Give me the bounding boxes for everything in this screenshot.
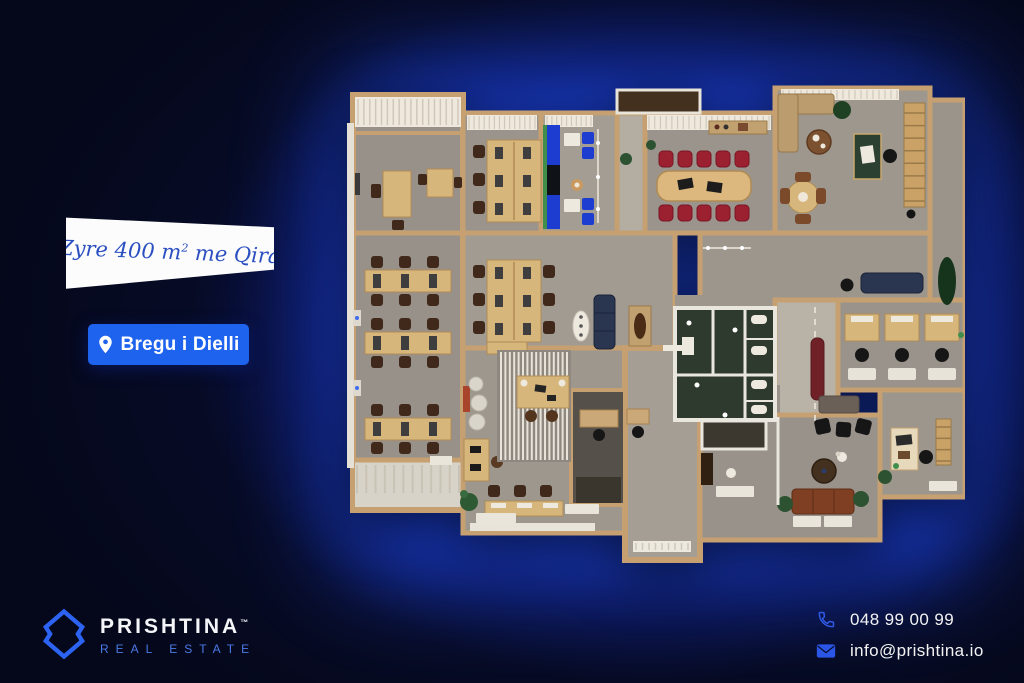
conference-chair	[735, 151, 749, 167]
cafe-chair	[582, 147, 594, 159]
plant	[853, 491, 869, 507]
office-chair	[895, 348, 909, 362]
chair	[399, 356, 411, 368]
conference-chair	[697, 205, 711, 221]
light-dot	[740, 246, 744, 250]
conference-chair	[735, 205, 749, 221]
chair	[795, 172, 811, 182]
chair	[473, 293, 485, 306]
chair	[371, 256, 383, 268]
lamp	[634, 313, 646, 339]
chair	[399, 404, 411, 416]
desk	[427, 169, 453, 197]
chair	[427, 318, 439, 330]
chair	[399, 318, 411, 330]
sill	[470, 523, 595, 531]
monitor	[401, 422, 409, 436]
contact-block: 048 99 00 99 info@prishtina.io	[816, 610, 984, 661]
offer-title: Zyre 400 m2 me Qira	[59, 236, 281, 268]
cafe-chair	[582, 213, 594, 225]
plant	[460, 490, 468, 498]
phone-row[interactable]: 048 99 00 99	[816, 610, 984, 630]
desk	[464, 439, 489, 481]
left-balcony-floor	[355, 462, 461, 507]
chair	[392, 220, 404, 230]
chair	[371, 356, 383, 368]
awning	[355, 97, 461, 127]
bin	[907, 210, 916, 219]
toilet	[751, 346, 767, 355]
decor	[579, 333, 583, 337]
toilet	[751, 315, 767, 324]
desk	[627, 409, 649, 424]
monitor	[543, 503, 558, 508]
envelope-icon	[816, 643, 836, 659]
window-dot	[355, 386, 359, 390]
door-gap	[663, 345, 689, 351]
monitor	[523, 323, 531, 335]
plant-small	[893, 463, 899, 469]
floor-mat	[888, 368, 916, 380]
pouf	[469, 414, 485, 430]
brand-name: PRISHTINA™	[100, 612, 256, 638]
sink	[723, 413, 728, 418]
window-dot	[958, 332, 964, 338]
coffee-table	[807, 130, 831, 154]
chair	[540, 485, 552, 497]
floor-mat	[824, 516, 852, 527]
light-dot	[706, 246, 710, 250]
diamond-logo-icon	[38, 606, 90, 662]
chair	[427, 442, 439, 454]
monitor	[495, 175, 503, 187]
monitor	[523, 267, 531, 279]
monitor	[495, 295, 503, 307]
light-dot	[596, 175, 600, 179]
utility-room	[702, 421, 766, 449]
outer-wall-west	[347, 123, 354, 468]
chair	[473, 201, 485, 214]
chair	[399, 294, 411, 306]
chair	[371, 184, 381, 198]
cabinet	[701, 453, 713, 485]
sink	[687, 321, 692, 326]
conference-table	[657, 171, 751, 201]
chair	[399, 256, 411, 268]
toilet	[751, 405, 767, 414]
decor	[836, 452, 841, 457]
monitor	[931, 316, 953, 322]
table-pad	[706, 181, 722, 193]
monitor	[523, 203, 531, 215]
decor	[579, 315, 583, 319]
pouf	[469, 377, 483, 391]
counter-item	[715, 125, 720, 130]
office-chair	[593, 429, 605, 441]
runner-rug	[811, 338, 824, 400]
chair	[427, 404, 439, 416]
chair	[816, 188, 826, 204]
sink	[733, 328, 738, 333]
papers	[860, 145, 875, 164]
cafe-chair	[582, 132, 594, 144]
chair	[795, 214, 811, 224]
awning	[467, 115, 537, 130]
conference-chair	[716, 151, 730, 167]
trademark-mark: ™	[240, 618, 248, 627]
chair	[780, 188, 790, 204]
cafe-chair	[582, 198, 594, 210]
monitor	[429, 274, 437, 288]
brand-block: PRISHTINA™ REAL ESTATE	[38, 606, 256, 662]
accent-wall	[463, 386, 470, 412]
monitor	[373, 274, 381, 288]
bookshelf	[904, 103, 925, 207]
stool-top	[575, 183, 580, 188]
floor-mat	[928, 368, 956, 380]
window-dot	[355, 316, 359, 320]
monitor	[517, 503, 532, 508]
desk-item	[898, 451, 910, 459]
monitor	[429, 422, 437, 436]
kitchen-counter	[547, 165, 560, 195]
chair	[427, 356, 439, 368]
conference-chair	[716, 205, 730, 221]
entry-hall	[617, 113, 645, 233]
decor	[821, 144, 826, 149]
lamp	[559, 380, 566, 387]
sofa-brown	[792, 489, 854, 514]
location-pin-icon	[98, 335, 113, 354]
pouf	[471, 395, 487, 411]
office-chair	[883, 149, 897, 163]
monitor	[470, 446, 481, 453]
plant	[878, 470, 892, 484]
office-chair	[632, 426, 644, 438]
office-chair	[935, 348, 949, 362]
chair	[543, 293, 555, 306]
decor	[822, 469, 827, 474]
conference-chair	[678, 151, 692, 167]
floor-mat	[929, 481, 957, 491]
chair	[473, 145, 485, 158]
conference-chair	[697, 151, 711, 167]
wardrobe	[936, 419, 951, 465]
monitor	[495, 203, 503, 215]
floor-mat	[793, 516, 821, 527]
floor-mat	[716, 486, 754, 497]
floor-mat	[430, 456, 452, 465]
location-label: Bregu i Dielli	[121, 334, 240, 356]
floor-mat	[565, 504, 599, 514]
monitor	[401, 274, 409, 288]
sofa-navy	[861, 273, 923, 293]
laptop	[547, 395, 556, 401]
decor	[798, 192, 808, 202]
monitor	[495, 147, 503, 159]
plant	[833, 101, 851, 119]
monitor	[851, 316, 873, 322]
conference-chair	[659, 151, 673, 167]
monitor	[523, 147, 531, 159]
desk	[383, 171, 411, 217]
brand-tagline: REAL ESTATE	[100, 642, 256, 656]
plant-tall	[938, 257, 956, 305]
counter-item	[724, 125, 729, 130]
kitchen-trim	[543, 125, 547, 229]
monitor	[470, 464, 481, 471]
floor-mat	[476, 513, 516, 523]
monitor	[891, 316, 913, 322]
chair	[543, 265, 555, 278]
chair	[473, 265, 485, 278]
terrace	[617, 90, 700, 113]
conference-chair	[678, 205, 692, 221]
chair	[488, 485, 500, 497]
chair	[454, 177, 462, 188]
location-button[interactable]: Bregu i Dielli	[88, 324, 249, 365]
sofa-navy	[594, 295, 615, 349]
email-address: info@prishtina.io	[850, 641, 984, 661]
loveseat	[819, 396, 859, 413]
toilet	[751, 380, 767, 389]
chair	[371, 442, 383, 454]
chair	[473, 173, 485, 186]
lounge-chair	[835, 422, 851, 438]
decor	[813, 135, 820, 142]
chair	[371, 404, 383, 416]
chair	[427, 256, 439, 268]
ad-canvas: Zyre 400 m2 me Qira Bregu i Dielli PRISH…	[0, 0, 1024, 683]
light-dot	[596, 207, 600, 211]
decor	[579, 324, 583, 328]
office-chair	[919, 450, 933, 464]
chair	[418, 174, 427, 185]
office-chair	[855, 348, 869, 362]
email-row[interactable]: info@prishtina.io	[816, 641, 984, 661]
plant	[646, 140, 656, 150]
light-dot	[723, 246, 727, 250]
chair	[371, 318, 383, 330]
wall-art	[355, 173, 360, 195]
monitor	[373, 422, 381, 436]
monitor	[523, 295, 531, 307]
cafe-table	[564, 133, 580, 146]
light-dot	[596, 141, 600, 145]
chair	[371, 294, 383, 306]
laptop	[896, 434, 913, 446]
cafe-table	[564, 199, 580, 212]
monitor	[491, 503, 506, 508]
offer-banner: Zyre 400 m2 me Qira	[66, 212, 274, 292]
desk	[580, 410, 618, 427]
chair	[399, 442, 411, 454]
sink	[695, 383, 700, 388]
conference-chair	[659, 205, 673, 221]
chair	[514, 485, 526, 497]
monitor	[429, 336, 437, 350]
office-chair	[841, 279, 854, 292]
chair	[427, 294, 439, 306]
monitor	[401, 336, 409, 350]
monitor	[495, 323, 503, 335]
lamp	[521, 380, 528, 387]
phone-number: 048 99 00 99	[850, 610, 954, 630]
floorplan-render	[345, 85, 965, 565]
lounge-chair	[814, 417, 832, 435]
storage-unit	[576, 477, 621, 503]
chair	[543, 321, 555, 334]
plant	[620, 153, 632, 165]
counter-item	[738, 123, 748, 131]
chair	[525, 410, 537, 422]
decor	[726, 468, 736, 478]
monitor	[373, 336, 381, 350]
phone-icon	[816, 610, 836, 630]
chair	[473, 321, 485, 334]
monitor	[523, 175, 531, 187]
brand-text: PRISHTINA™ REAL ESTATE	[100, 612, 256, 656]
sofa	[778, 94, 798, 152]
floor-mat	[848, 368, 876, 380]
monitor	[495, 267, 503, 279]
chair	[546, 410, 558, 422]
